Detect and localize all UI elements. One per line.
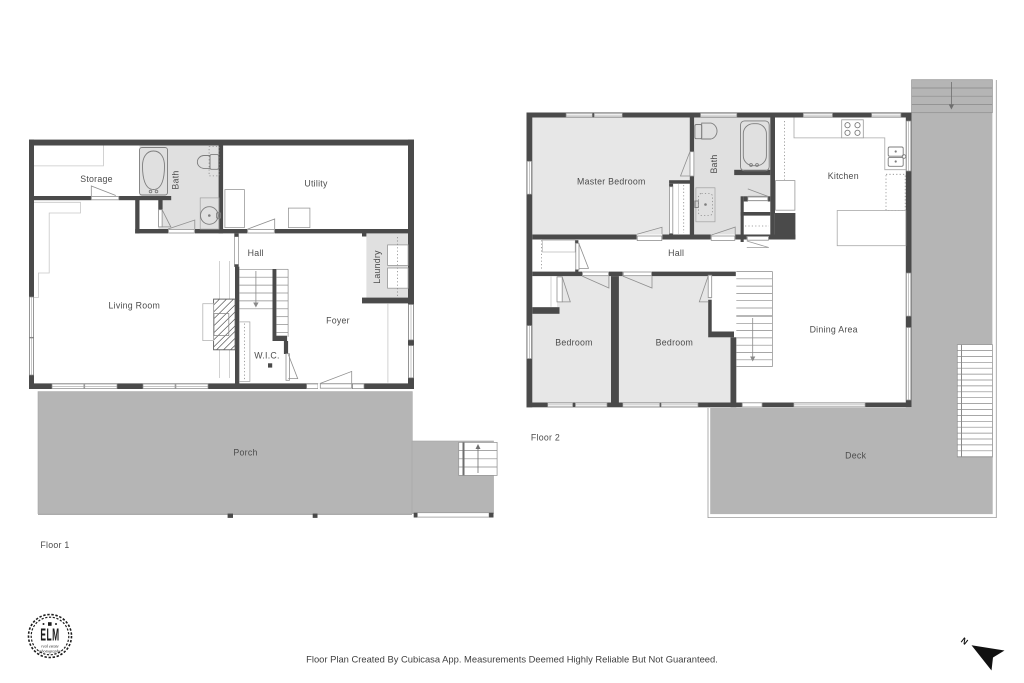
svg-text:Porch: Porch <box>233 448 257 458</box>
svg-text:Dining Area: Dining Area <box>810 325 858 335</box>
svg-text:Master Bedroom: Master Bedroom <box>577 176 646 186</box>
svg-text:ELM: ELM <box>40 624 59 644</box>
svg-text:Bath: Bath <box>709 154 719 173</box>
svg-text:Laundry: Laundry <box>372 250 382 284</box>
svg-text:Hall: Hall <box>248 248 264 258</box>
svg-text:Utility: Utility <box>304 178 328 188</box>
svg-text:Storage: Storage <box>80 174 113 184</box>
svg-text:Hall: Hall <box>668 248 684 258</box>
svg-text:Living Room: Living Room <box>108 301 160 311</box>
svg-text:Foyer: Foyer <box>326 315 350 325</box>
svg-text:Floor 2: Floor 2 <box>531 432 560 442</box>
svg-text:Floor 1: Floor 1 <box>40 540 69 550</box>
svg-text:Bedroom: Bedroom <box>555 338 592 348</box>
svg-text:photography: photography <box>38 649 61 654</box>
svg-text:Bath: Bath <box>171 170 181 189</box>
svg-text:Floor Plan Created By Cubicasa: Floor Plan Created By Cubicasa App. Meas… <box>306 654 718 665</box>
svg-text:Bedroom: Bedroom <box>656 338 693 348</box>
svg-text:Kitchen: Kitchen <box>828 171 859 181</box>
svg-text:W.I.C.: W.I.C. <box>254 350 279 360</box>
svg-text:Deck: Deck <box>845 451 866 461</box>
